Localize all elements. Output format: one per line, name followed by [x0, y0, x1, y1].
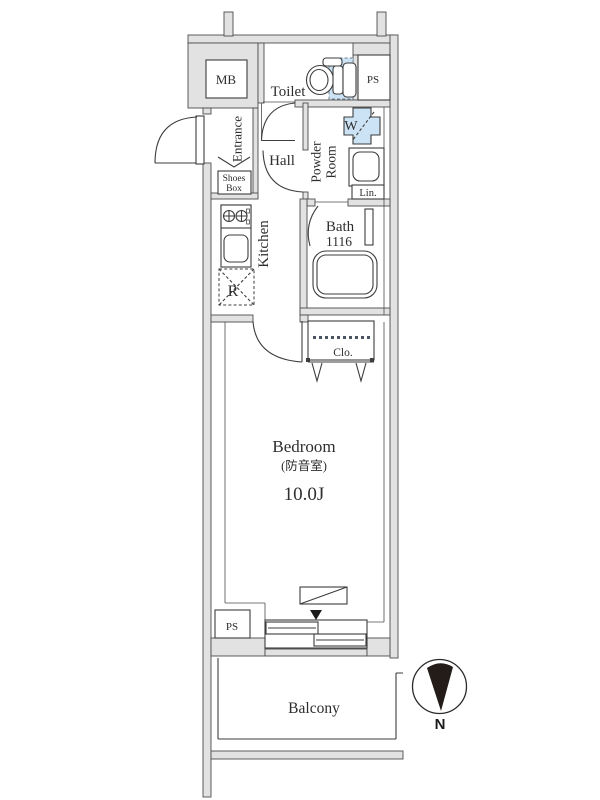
linen-label: Lin. — [359, 188, 376, 199]
hall-label: Hall — [269, 153, 295, 169]
mb-label: MB — [216, 72, 237, 87]
wall-segment — [211, 638, 265, 656]
wall-segment — [211, 751, 403, 759]
wall-segment — [253, 108, 258, 198]
entrance-label: Entrance — [230, 116, 245, 162]
shoes-box-label-2: Box — [226, 184, 242, 194]
wall-segment — [203, 163, 211, 797]
wall-segment — [303, 192, 308, 199]
wall-segment — [211, 315, 253, 322]
bath-label: Bath — [326, 219, 355, 235]
toilet-lid-bar — [323, 58, 342, 66]
wall-segment — [300, 315, 308, 322]
bedroom-label: Bedroom — [272, 437, 335, 456]
north-label: N — [435, 716, 446, 733]
wall-segment — [188, 35, 394, 43]
toilet-tank-front — [333, 66, 343, 94]
bath-counter — [365, 209, 373, 245]
shoes-box-label-1: Shoes — [223, 174, 246, 184]
gas-stove-icon — [221, 205, 251, 228]
washbasin-bowl — [353, 152, 379, 181]
entrance-door-leaf — [196, 116, 204, 164]
wall-segment — [367, 638, 390, 656]
washer-label: W — [344, 119, 358, 134]
wall-segment — [303, 103, 308, 150]
bathtub-inner — [317, 255, 373, 294]
toilet-label: Toilet — [271, 84, 307, 100]
wall-segment — [295, 100, 390, 107]
bedroom-note-label: (防音室) — [281, 458, 327, 473]
wall-segment — [265, 649, 367, 656]
ps-upper-label: PS — [367, 74, 379, 86]
bedroom-size-label: 10.0J — [284, 484, 325, 505]
wall-segment — [258, 43, 264, 103]
closet-label: Clo. — [333, 347, 353, 359]
balcony-label: Balcony — [288, 700, 340, 717]
toilet-seat — [310, 70, 328, 91]
background — [0, 0, 600, 800]
toilet-tank — [343, 63, 356, 97]
refrigerator-label: R — [228, 283, 239, 300]
wall-segment — [300, 308, 390, 315]
kitchen-sink-icon — [224, 235, 248, 262]
wall-segment — [203, 108, 211, 114]
wall-segment — [307, 199, 315, 206]
powder-room-label-2: Room — [324, 145, 339, 179]
kitchen-label: Kitchen — [256, 220, 272, 268]
bath-size-label: 1116 — [326, 234, 352, 249]
north-arrow-icon — [413, 660, 467, 714]
floor-plan-drawing: MB Toilet PS Entrance Shoes Box Hall Pow… — [0, 0, 600, 800]
wall-segment — [224, 12, 233, 36]
wall-segment — [353, 43, 390, 55]
wall-segment — [377, 12, 386, 36]
powder-room-label-1: Powder — [309, 141, 324, 183]
kitchen-counter — [221, 205, 251, 267]
floor-plan-page: MB Toilet PS Entrance Shoes Box Hall Pow… — [0, 0, 600, 800]
washbasin-icon — [349, 148, 384, 186]
ps-lower-label: PS — [226, 621, 238, 633]
bathtub-icon — [313, 251, 377, 298]
sliding-window — [265, 620, 367, 648]
wall-segment — [300, 199, 307, 315]
wall-segment — [390, 35, 398, 658]
